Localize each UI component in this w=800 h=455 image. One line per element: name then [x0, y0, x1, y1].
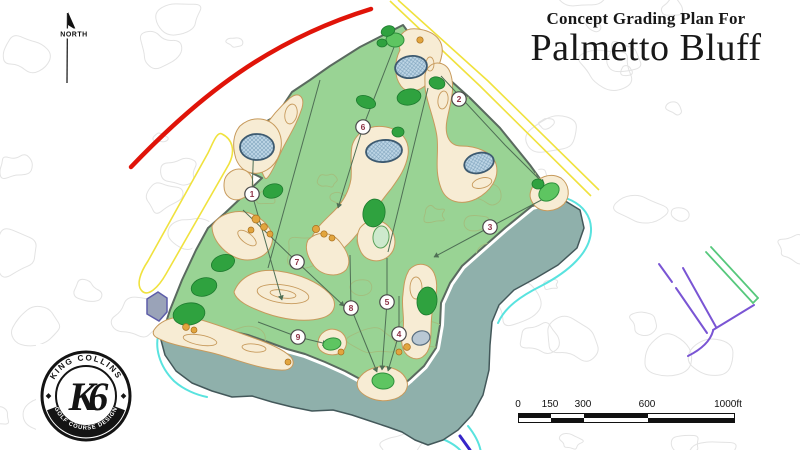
- hole-marker: 4: [392, 327, 406, 341]
- svg-text:7: 7: [295, 257, 300, 267]
- hole-marker: 2: [452, 92, 466, 106]
- hole-marker: 1: [245, 187, 259, 201]
- plan-title: Palmetto Bluff: [500, 29, 792, 69]
- scale-label: 150: [542, 399, 559, 410]
- contour-squiggle: [614, 195, 668, 223]
- contour-squiggle: [671, 208, 689, 222]
- contour-squiggle: [671, 435, 698, 450]
- contour-squiggle: [538, 118, 554, 129]
- svg-text:8: 8: [349, 303, 354, 313]
- svg-text:2: 2: [457, 94, 462, 104]
- svg-text:3: 3: [488, 222, 493, 232]
- contour-squiggle: [553, 0, 608, 6]
- contour-squiggle: [689, 442, 737, 450]
- hole-marker: 6: [356, 120, 370, 134]
- scale-label: 0: [515, 399, 521, 410]
- survey-lines-green: [706, 247, 758, 303]
- hole-marker: 9: [291, 330, 305, 344]
- north-arrow: NORTH: [60, 12, 88, 83]
- svg-text:6: 6: [361, 122, 366, 132]
- contour-squiggle: [666, 102, 682, 115]
- scale-label: 300: [575, 399, 592, 410]
- hole-marker: 3: [483, 220, 497, 234]
- svg-text:5: 5: [385, 297, 390, 307]
- designer-logo: KING COLLINS GOLF COURSE DESIGN K6: [36, 344, 137, 450]
- scale-label: 1000ft: [714, 399, 742, 410]
- svg-text:4: 4: [397, 329, 402, 339]
- survey-tick-blue: [460, 436, 470, 450]
- hole-marker: 8: [344, 301, 358, 315]
- contour-squiggle: [0, 155, 32, 179]
- contour-squiggle: [74, 279, 102, 301]
- contour-squiggle: [140, 31, 181, 68]
- contour-squiggle: [226, 38, 243, 47]
- pond: [240, 134, 274, 160]
- contour-squiggle: [548, 316, 598, 361]
- contour-squiggle: [156, 4, 201, 35]
- scale-bar-rule: [518, 413, 735, 423]
- title-block: Concept Grading Plan For Palmetto Bluff: [500, 10, 792, 69]
- hole-marker: 5: [380, 295, 394, 309]
- svg-text:9: 9: [296, 332, 301, 342]
- contour-squiggle: [630, 312, 657, 335]
- contour-squiggle: [0, 229, 36, 277]
- contour-squiggle: [645, 334, 692, 376]
- contour-squiggle: [688, 339, 733, 375]
- scale-bar-labels: 0 150 300 600 1000ft: [518, 399, 735, 411]
- contour-squiggle: [161, 158, 197, 185]
- contour-squiggle: [778, 235, 800, 264]
- contour-squiggle: [498, 64, 543, 101]
- hole-marker: 7: [290, 255, 304, 269]
- plan-subtitle: Concept Grading Plan For: [500, 10, 792, 28]
- north-label: NORTH: [60, 32, 87, 39]
- contour-squiggle: [11, 306, 59, 345]
- contour-squiggle: [526, 116, 577, 152]
- contour-squiggle: [3, 36, 50, 73]
- contour-squiggle: [559, 433, 583, 449]
- contour-squiggle: [0, 407, 9, 424]
- contour-squiggle: [171, 168, 189, 183]
- svg-text:1: 1: [250, 189, 255, 199]
- scale-bar: 0 150 300 600 1000ft: [518, 399, 735, 425]
- contour-squiggle: [520, 323, 559, 354]
- scale-label: 600: [639, 399, 656, 410]
- north-arrow-head: [68, 12, 76, 30]
